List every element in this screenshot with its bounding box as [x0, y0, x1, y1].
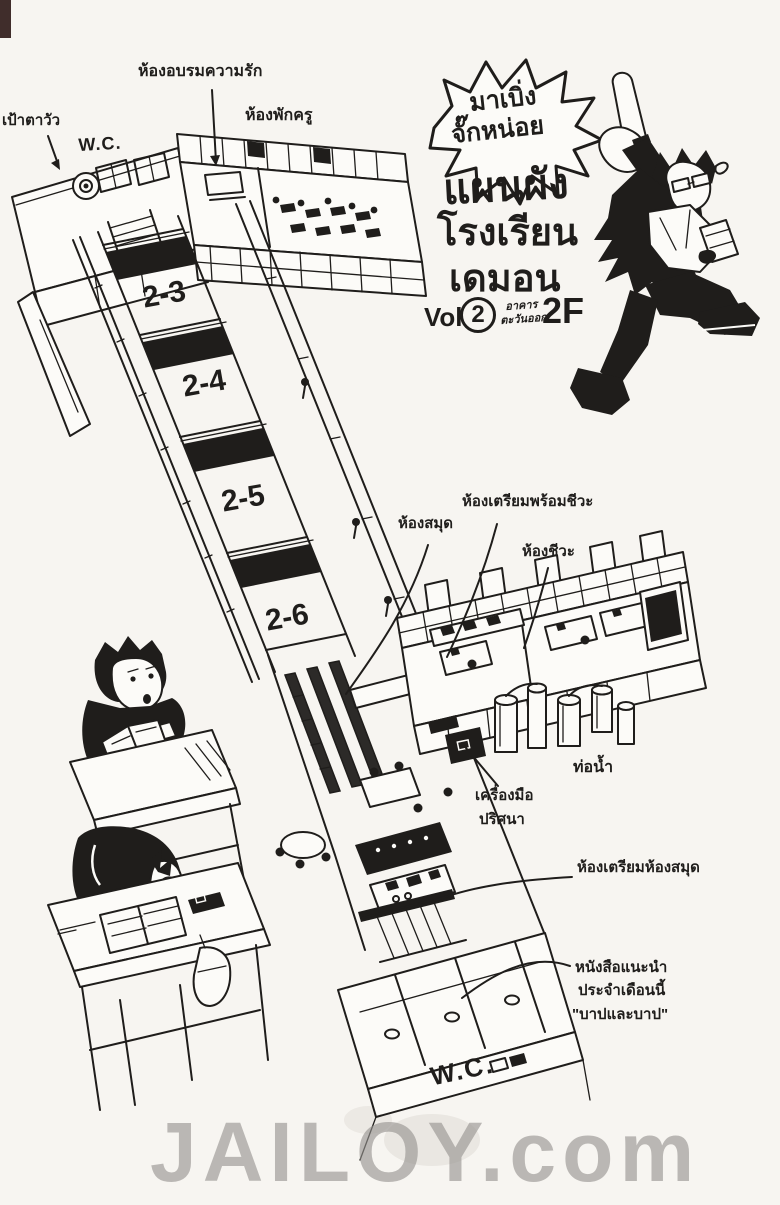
label-recommended-book-line3: "บาปและบาป"	[572, 1007, 668, 1023]
label-library: ห้องสมุด	[398, 516, 453, 532]
hanging-bag	[194, 947, 231, 1006]
classroom-2-3: 2-3	[140, 275, 188, 314]
bio-wing	[397, 531, 706, 764]
label-recommended-book-line2: ประจำเดือนนี้	[578, 983, 665, 999]
title-heading-line2: โรงเรียน	[437, 214, 578, 254]
label-teachers-room: ห้องพักครู	[245, 108, 313, 125]
title-building-line1: อาคาร	[505, 300, 538, 314]
title-floor: 2F	[542, 292, 584, 330]
label-wc-top: W.C.	[78, 134, 122, 155]
teacher-character	[570, 73, 760, 415]
label-cow-target: เป้าตาวัว	[2, 113, 60, 129]
staircase	[358, 889, 466, 962]
label-library-prep-room: ห้องเตรียมห้องสมุด	[577, 860, 700, 876]
manga-page: เป้าตาวัว W.C. ห้องอบรมความรัก ห้องพักคร…	[0, 0, 780, 1205]
label-love-training-room: ห้องอบรมความรัก	[138, 64, 262, 81]
label-bio-room: ห้องชีวะ	[522, 544, 575, 560]
label-water-pipes: ท่อน้ำ	[573, 760, 613, 777]
student-girl	[48, 826, 270, 1110]
left-leg	[600, 290, 658, 385]
label-mystery-tools-line2: ปริศนา	[479, 812, 525, 828]
classroom-2-5: 2-5	[219, 479, 267, 518]
classroom-2-4: 2-4	[180, 364, 228, 403]
title-heading-line1: แผนผัง	[442, 161, 570, 212]
classroom-2-6: 2-6	[263, 598, 311, 637]
label-recommended-book-line1: หนังสือแนะนำ	[575, 960, 667, 976]
watermark: JAILOY.com	[150, 1104, 700, 1201]
label-bio-prep-room: ห้องเตรียมพร้อมชีวะ	[462, 494, 593, 510]
floorplan-drawing	[0, 0, 780, 1205]
title-vol-number: 2	[460, 297, 496, 333]
label-mystery-tools-line1: เครื่องมือ	[475, 788, 533, 804]
